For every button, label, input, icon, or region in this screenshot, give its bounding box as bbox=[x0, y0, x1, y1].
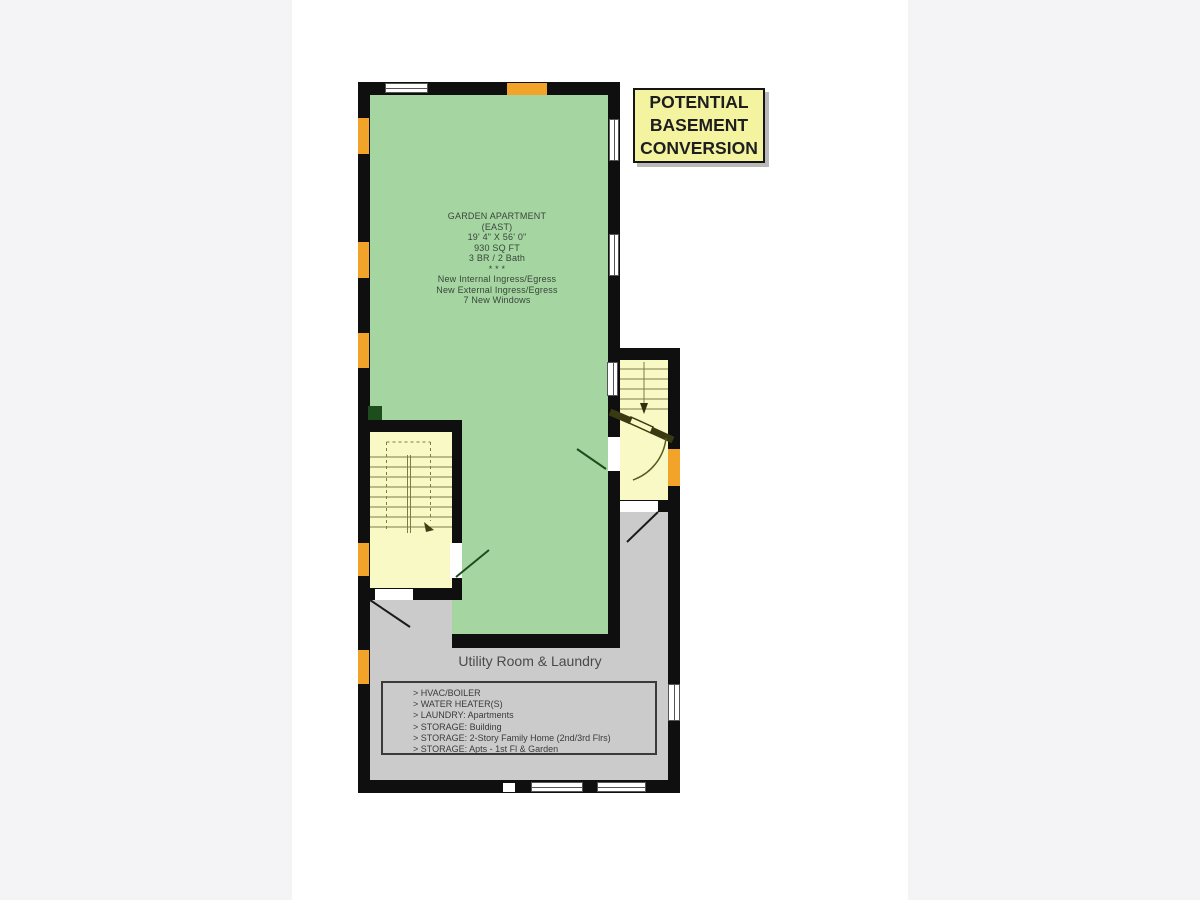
text-line: > WATER HEATER(S) bbox=[413, 699, 655, 710]
utility-room-right bbox=[620, 512, 668, 648]
text-line: > LAUNDRY: Apartments bbox=[413, 710, 655, 721]
window-marker-stair-wall bbox=[607, 362, 618, 396]
text-line: New External Ingress/Egress bbox=[377, 285, 617, 296]
right-gutter bbox=[908, 0, 1200, 900]
text-line: GARDEN APARTMENT bbox=[377, 211, 617, 222]
orange-window-left-1 bbox=[358, 118, 369, 154]
window-marker-utility-right bbox=[668, 684, 680, 721]
text-line: > HVAC/BOILER bbox=[413, 688, 655, 699]
text-line: 3 BR / 2 Bath bbox=[377, 253, 617, 264]
structural-column bbox=[368, 406, 382, 420]
orange-window-left-5 bbox=[358, 650, 369, 684]
text-line: > STORAGE: Apts - 1st Fl & Garden bbox=[413, 744, 655, 755]
door-opening-apartment-to-rightstair bbox=[608, 437, 620, 471]
text-line: New Internal Ingress/Egress bbox=[377, 274, 617, 285]
right-stairwell bbox=[620, 360, 668, 500]
orange-window-right-stair bbox=[668, 449, 680, 486]
text-line: > STORAGE: Building bbox=[413, 722, 655, 733]
orange-window-left-4 bbox=[358, 543, 369, 576]
window-marker-top bbox=[385, 83, 428, 93]
text-line: * * * bbox=[377, 264, 617, 275]
text-line: 7 New Windows bbox=[377, 295, 617, 306]
left-gutter bbox=[0, 0, 292, 900]
utility-notes-list: > HVAC/BOILER> WATER HEATER(S)> LAUNDRY:… bbox=[383, 683, 655, 755]
title-box: POTENTIALBASEMENTCONVERSION bbox=[633, 88, 765, 163]
text-line: (EAST) bbox=[377, 222, 617, 233]
window-marker-right-1 bbox=[609, 119, 619, 161]
window-marker-bottom-2 bbox=[597, 782, 646, 792]
door-opening-stair-to-utility bbox=[375, 589, 413, 600]
text-line: > STORAGE: 2-Story Family Home (2nd/3rd … bbox=[413, 733, 655, 744]
utility-notes-box: > HVAC/BOILER> WATER HEATER(S)> LAUNDRY:… bbox=[381, 681, 657, 755]
orange-window-left-2 bbox=[358, 242, 369, 278]
orange-window-top bbox=[507, 83, 547, 95]
orange-window-left-3 bbox=[358, 333, 369, 368]
door-opening-rightstair-to-utility bbox=[620, 501, 658, 512]
text-line: 930 SQ FT bbox=[377, 243, 617, 254]
text-line: POTENTIAL bbox=[635, 91, 763, 114]
garden-apartment-label: GARDEN APARTMENT(EAST)19' 4" X 56' 0"930… bbox=[377, 211, 617, 306]
left-stairwell bbox=[370, 432, 452, 588]
floor-plan-page: GARDEN APARTMENT(EAST)19' 4" X 56' 0"930… bbox=[0, 0, 1200, 900]
text-line: BASEMENT bbox=[635, 114, 763, 137]
door-opening-stair-to-apartment bbox=[450, 543, 462, 578]
text-line: 19' 4" X 56' 0" bbox=[377, 232, 617, 243]
text-line: CONVERSION bbox=[635, 137, 763, 160]
utility-room-label: Utility Room & Laundry bbox=[410, 653, 650, 669]
utility-room-left bbox=[370, 600, 452, 648]
window-marker-bottom-1 bbox=[531, 782, 583, 792]
bottom-wall-notch bbox=[503, 783, 515, 792]
